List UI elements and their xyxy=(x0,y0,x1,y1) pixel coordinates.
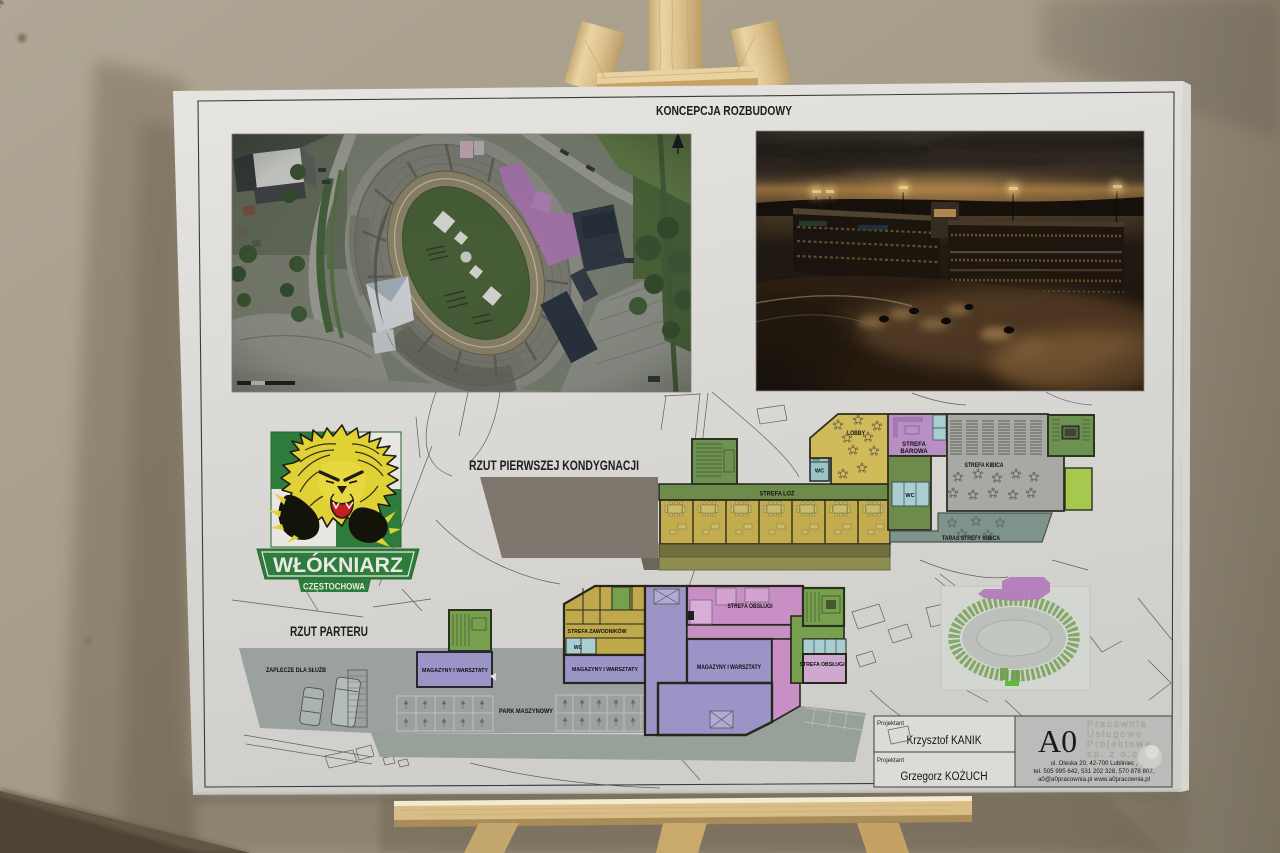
svg-text:STREFA LOŻ: STREFA LOŻ xyxy=(760,490,795,498)
svg-text:MAGAZYNY I WARSZTATY: MAGAZYNY I WARSZTATY xyxy=(572,667,638,673)
svg-text:KONCEPCJA ROZBUDOWY: KONCEPCJA ROZBUDOWY xyxy=(656,103,792,118)
svg-text:ZAPLECZE DLA SŁUŻB: ZAPLECZE DLA SŁUŻB xyxy=(266,667,326,674)
svg-text:sp. z o.o.: sp. z o.o. xyxy=(1087,749,1144,760)
svg-text:TARAS STREFY KIBICA: TARAS STREFY KIBICA xyxy=(942,536,1001,542)
svg-text:STREFA ZAWODNIKÓW: STREFA ZAWODNIKÓW xyxy=(568,627,628,635)
svg-text:PARK MASZYNOWY: PARK MASZYNOWY xyxy=(499,708,554,715)
svg-text:RZUT PARTERU: RZUT PARTERU xyxy=(290,624,368,639)
svg-text:Projektant: Projektant xyxy=(877,721,904,727)
svg-text:STREFA: STREFA xyxy=(902,442,926,448)
svg-text:RZUT PIERWSZEJ KONDYGNACJI: RZUT PIERWSZEJ KONDYGNACJI xyxy=(469,457,639,473)
svg-text:MAGAZYNY I WARSZTATY: MAGAZYNY I WARSZTATY xyxy=(697,664,762,671)
svg-text:A0: A0 xyxy=(1038,723,1077,759)
svg-text:WC: WC xyxy=(574,645,583,651)
svg-text:Krzysztof KANIK: Krzysztof KANIK xyxy=(907,735,982,747)
svg-text:WC: WC xyxy=(905,493,914,499)
svg-text:MAGAZYNY I WARSZTATY: MAGAZYNY I WARSZTATY xyxy=(422,668,488,674)
svg-text:tel. 505 995 642, 531 202 328,: tel. 505 995 642, 531 202 328, 570 878 8… xyxy=(1034,768,1155,775)
svg-text:CZĘSTOCHOWA: CZĘSTOCHOWA xyxy=(303,582,365,592)
svg-text:STREFA OBSŁUGI: STREFA OBSŁUGI xyxy=(728,603,773,610)
svg-text:STREFA OBSŁUGI: STREFA OBSŁUGI xyxy=(800,662,845,668)
svg-text:ul. Oleska 20, 42-700 Lublinie: ul. Oleska 20, 42-700 Lubliniec , xyxy=(1051,760,1138,767)
svg-text:a0@a0pracownia.pl www.a0pracow: a0@a0pracownia.pl www.a0pracownia.pl xyxy=(1038,776,1150,783)
svg-text:WC: WC xyxy=(815,469,824,475)
svg-text:Grzegorz KOŻUCH: Grzegorz KOŻUCH xyxy=(901,770,988,783)
svg-text:BAROWA: BAROWA xyxy=(900,449,928,455)
svg-text:Projektant: Projektant xyxy=(877,758,904,764)
svg-text:WŁÓKNIARZ: WŁÓKNIARZ xyxy=(273,553,403,577)
svg-text:STREFA KIBICA: STREFA KIBICA xyxy=(965,463,1005,469)
